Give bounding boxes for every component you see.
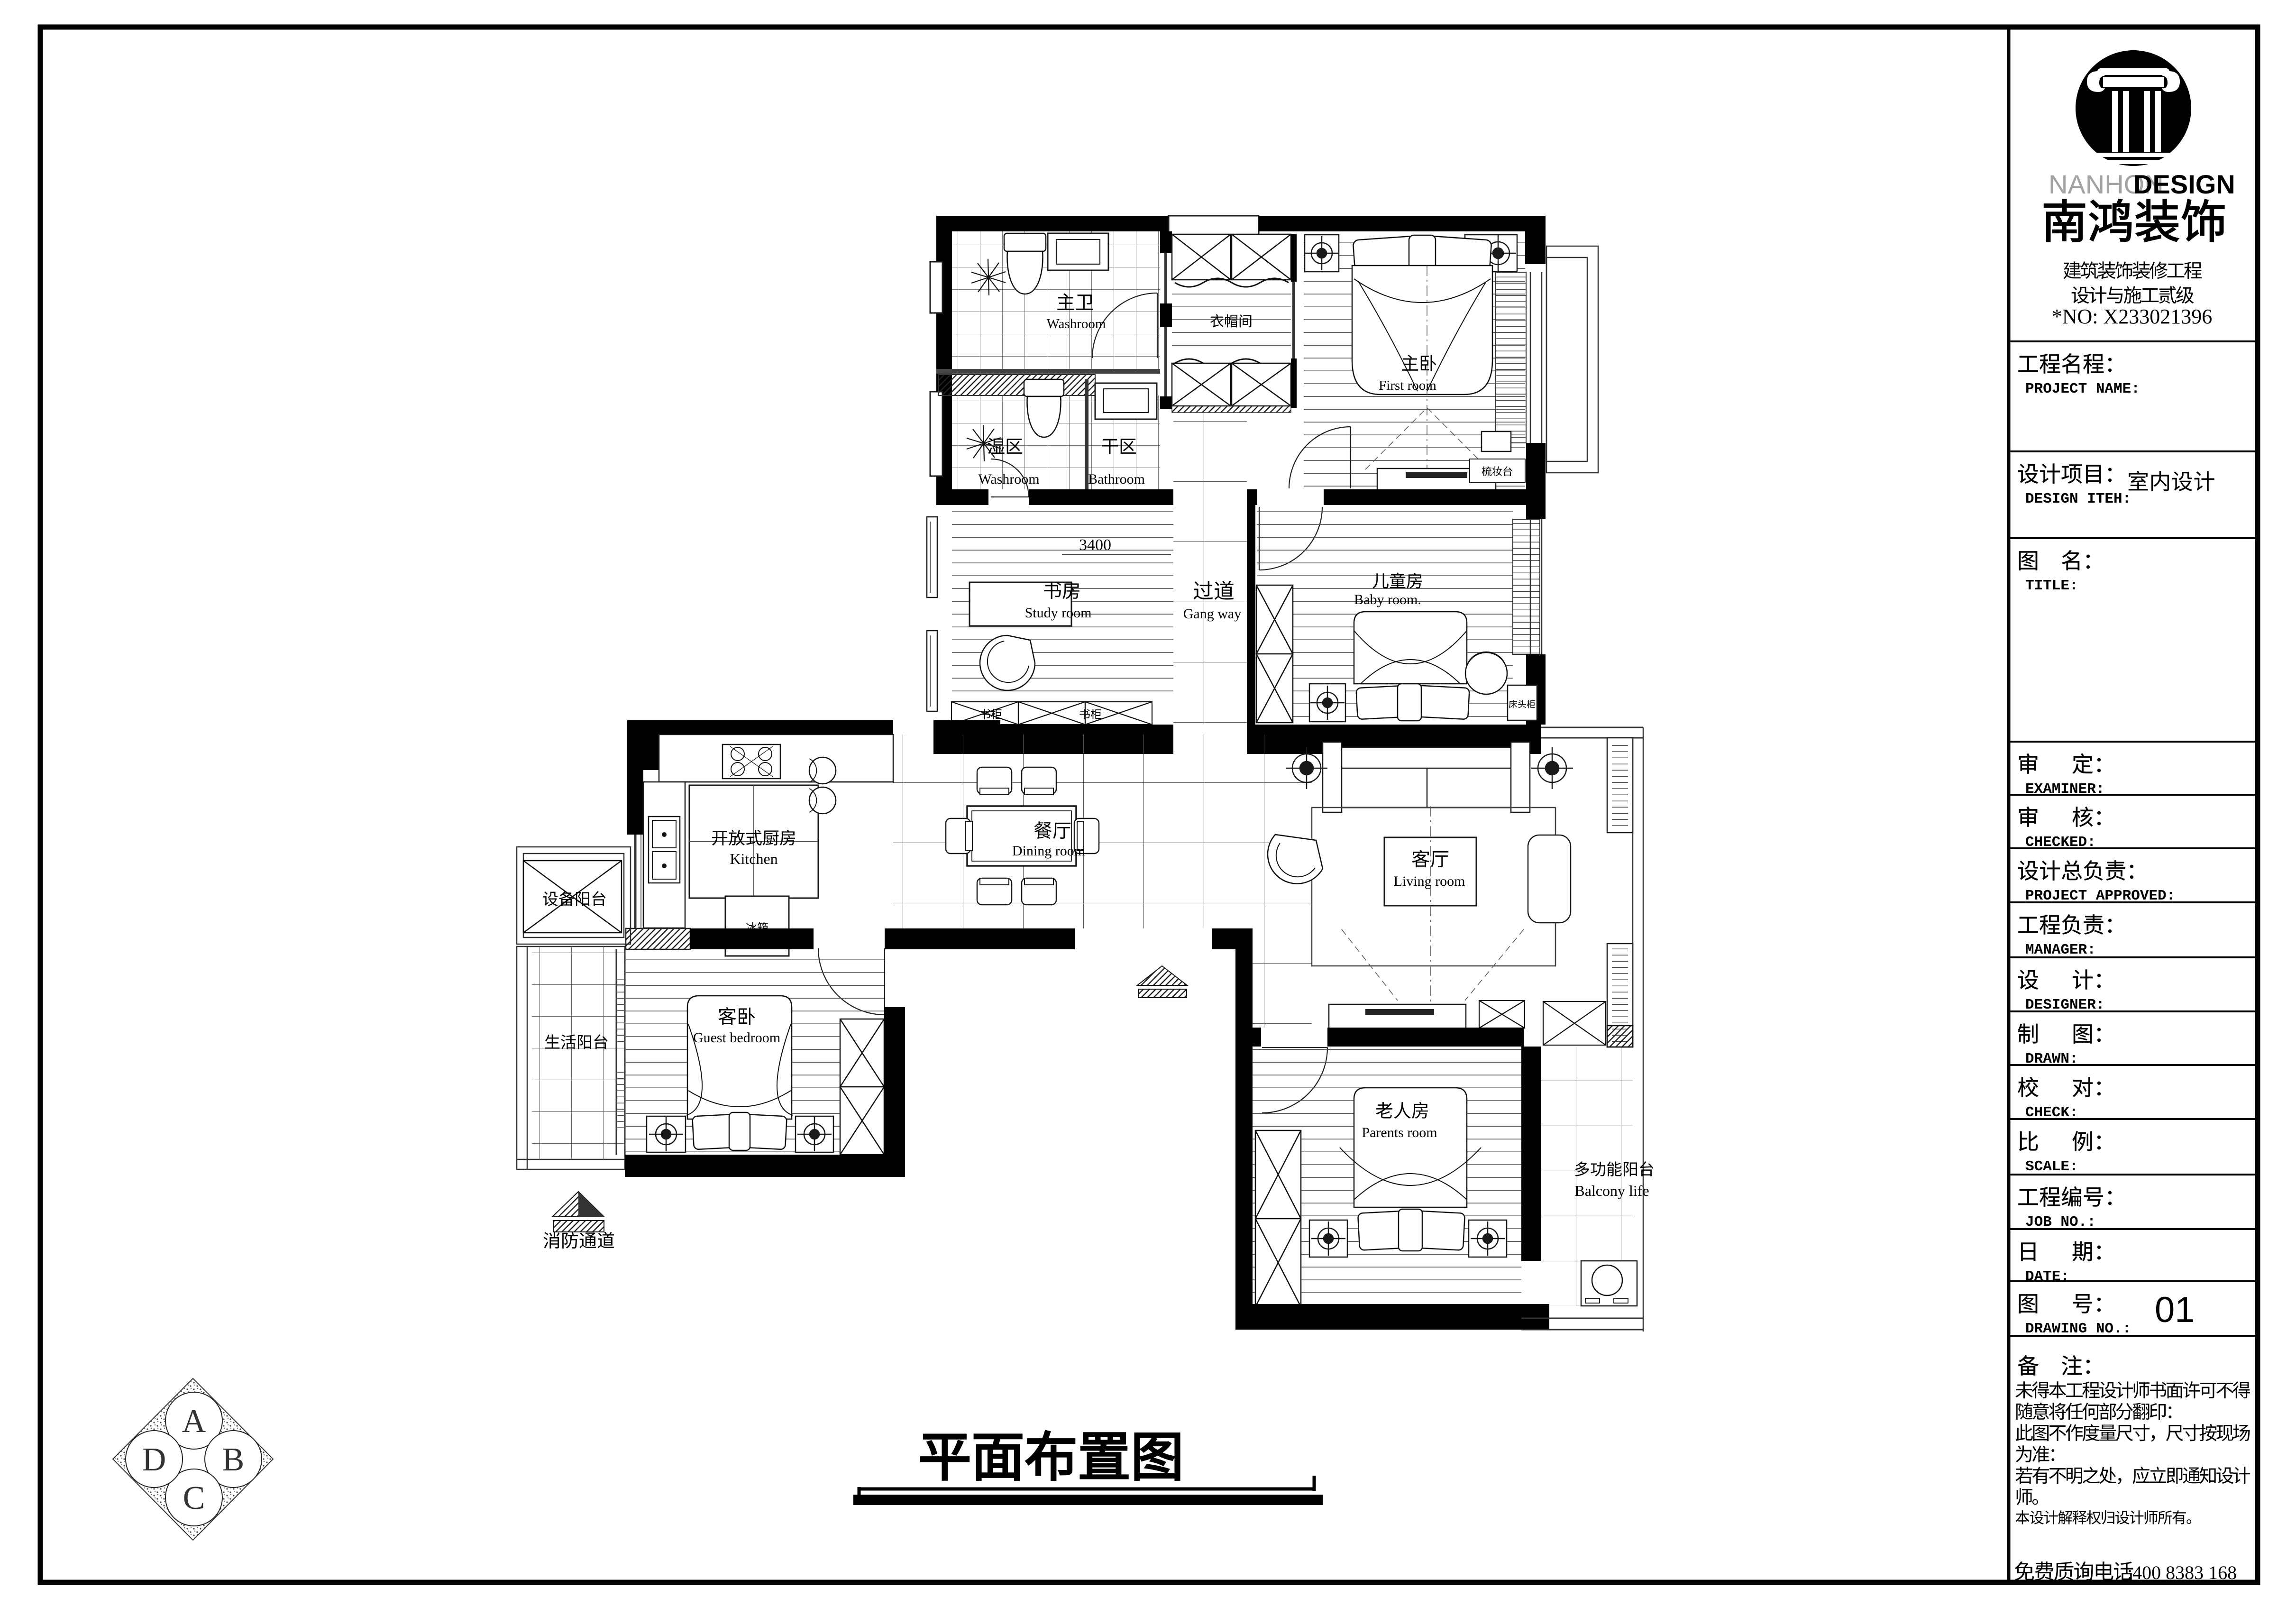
svg-text:DESIGN: DESIGN xyxy=(2133,169,2235,199)
svg-text:D: D xyxy=(142,1442,166,1478)
svg-text:CHECK:: CHECK: xyxy=(2025,1104,2078,1121)
svg-text:TITLE:: TITLE: xyxy=(2025,578,2078,594)
svg-text:PROJECT NAME:: PROJECT NAME: xyxy=(2025,381,2140,397)
svg-text:Guest bedroom: Guest bedroom xyxy=(693,1030,780,1046)
svg-text:Washroom: Washroom xyxy=(978,471,1039,487)
svg-text:Kitchen: Kitchen xyxy=(730,850,778,867)
svg-text:JOB NO.:: JOB NO.: xyxy=(2025,1214,2096,1231)
svg-text:Washroom: Washroom xyxy=(1047,316,1106,331)
svg-text:3400: 3400 xyxy=(1079,536,1111,554)
svg-text:Balcony life: Balcony life xyxy=(1574,1182,1649,1199)
svg-text:PROJECT APPROVED:: PROJECT APPROVED: xyxy=(2025,888,2175,904)
svg-text:Study room: Study room xyxy=(1025,605,1092,621)
svg-text:B: B xyxy=(222,1442,245,1478)
svg-text:Baby room.: Baby room. xyxy=(1354,592,1421,607)
svg-text:DRAWN:: DRAWN: xyxy=(2025,1051,2078,1067)
svg-text:Bathroom: Bathroom xyxy=(1088,471,1145,487)
svg-text:DESIGN ITEH:: DESIGN ITEH: xyxy=(2025,491,2131,507)
svg-text:SCALE:: SCALE: xyxy=(2025,1158,2078,1175)
svg-text:First room: First room xyxy=(1379,378,1436,393)
svg-text::400 8383 168: :400 8383 168 xyxy=(2127,1562,2237,1583)
svg-text:*NO: X233021396: *NO: X233021396 xyxy=(2052,305,2213,328)
svg-text:C: C xyxy=(183,1480,205,1516)
svg-text:Parents room: Parents room xyxy=(1362,1125,1437,1140)
svg-text:Dining room: Dining room xyxy=(1012,843,1085,859)
svg-text:DRAWING NO.:: DRAWING NO.: xyxy=(2025,1321,2131,1337)
svg-text:DATE:: DATE: xyxy=(2025,1268,2069,1285)
svg-text:01: 01 xyxy=(2155,1290,2195,1330)
svg-text:DESIGNER:: DESIGNER: xyxy=(2025,997,2104,1013)
svg-text:Living room: Living room xyxy=(1394,873,1465,889)
svg-text:MANAGER:: MANAGER: xyxy=(2025,942,2096,958)
svg-text:A: A xyxy=(182,1403,206,1440)
svg-text:Gang way: Gang way xyxy=(1183,606,1241,622)
svg-text:EXAMINER:: EXAMINER: xyxy=(2025,781,2104,798)
svg-text:CHECKED:: CHECKED: xyxy=(2025,834,2096,851)
